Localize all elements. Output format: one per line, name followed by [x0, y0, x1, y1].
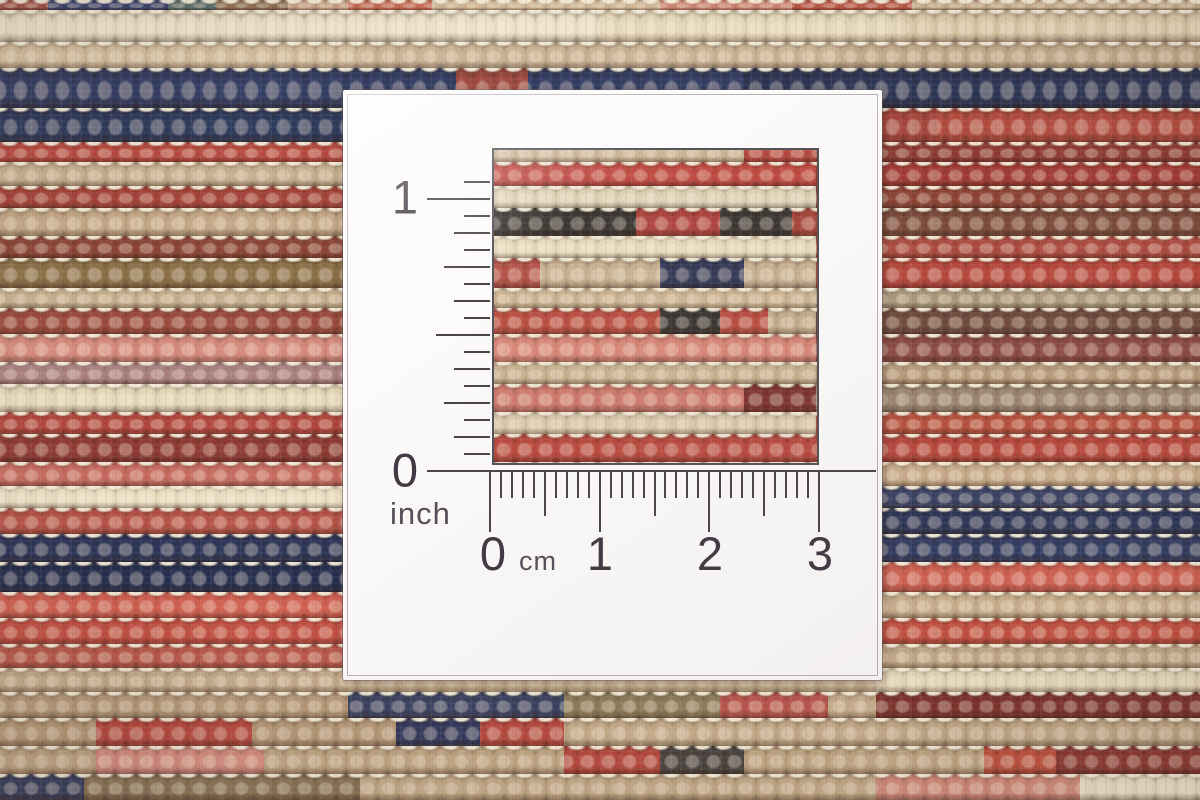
- carpet-through-window: [492, 148, 819, 465]
- carpet-row: [492, 434, 819, 462]
- ruler-tick: [796, 472, 798, 498]
- carpet-row: [0, 0, 1200, 10]
- ruler-tick: [577, 472, 579, 498]
- carpet-row: [0, 10, 1200, 42]
- ruler-tick: [752, 472, 754, 498]
- ruler-tick: [599, 472, 601, 532]
- ruler-tick: [464, 351, 490, 353]
- ruler-tick: [464, 317, 490, 319]
- ruler-tick: [454, 300, 490, 302]
- cm-unit-label: cm: [519, 548, 557, 575]
- ruler-tick: [807, 472, 809, 498]
- ruler-tick: [675, 472, 677, 498]
- ruler-tick: [454, 232, 490, 234]
- carpet-row: [492, 362, 819, 384]
- cm-label-0: 0: [480, 530, 506, 577]
- carpet-row: [492, 258, 819, 288]
- ruler-tick: [454, 368, 490, 370]
- ruler-tick: [436, 334, 490, 336]
- ruler-tick: [774, 472, 776, 498]
- cm-label-2: 2: [697, 530, 723, 577]
- carpet-row: [0, 692, 1200, 718]
- cm-label-3: 3: [807, 530, 833, 577]
- ruler-tick: [588, 472, 590, 498]
- ruler-tick: [522, 472, 524, 498]
- carpet-row: [492, 148, 819, 162]
- ruler-tick: [719, 472, 721, 498]
- carpet-row: [492, 462, 819, 465]
- ruler-tick: [632, 472, 634, 498]
- carpet-row: [0, 774, 1200, 800]
- ruler-tick: [621, 472, 623, 498]
- ruler-tick: [533, 472, 535, 498]
- carpet-row: [492, 236, 819, 258]
- ruler-tick: [544, 472, 546, 516]
- card-cutout-window: [492, 148, 819, 465]
- ruler-tick: [464, 419, 490, 421]
- carpet-row: [492, 384, 819, 412]
- ruler-tick: [566, 472, 568, 498]
- ruler-tick: [730, 472, 732, 498]
- ruler-tick: [444, 266, 490, 268]
- carpet-row: [492, 208, 819, 236]
- carpet-row: [0, 42, 1200, 68]
- ruler-tick: [818, 472, 820, 532]
- carpet-row: [492, 412, 819, 434]
- ruler-tick: [785, 472, 787, 498]
- ruler-tick: [427, 198, 490, 200]
- ruler-tick: [454, 436, 490, 438]
- carpet-row: [492, 334, 819, 362]
- ruler-tick: [686, 472, 688, 498]
- ruler-tick: [664, 472, 666, 498]
- inch-label-0: 0: [373, 447, 418, 494]
- cm-label-1: 1: [587, 530, 613, 577]
- ruler-tick: [708, 472, 710, 532]
- carpet-row: [492, 186, 819, 208]
- ruler-tick: [610, 472, 612, 498]
- ruler-tick: [427, 470, 876, 472]
- carpet-row: [0, 718, 1200, 746]
- ruler-tick: [489, 472, 491, 532]
- ruler-tick: [741, 472, 743, 498]
- measuring-card: 1 0 inch 0 cm 1 2 3: [343, 90, 882, 680]
- ruler-tick: [555, 472, 557, 498]
- ruler-tick: [464, 249, 490, 251]
- ruler-tick: [444, 402, 490, 404]
- ruler-tick: [464, 283, 490, 285]
- inch-unit-label: inch: [390, 498, 451, 529]
- ruler-tick: [464, 385, 490, 387]
- ruler-tick: [464, 181, 490, 183]
- carpet-row: [492, 288, 819, 308]
- ruler-tick: [654, 472, 656, 516]
- ruler-tick: [697, 472, 699, 498]
- ruler-tick: [643, 472, 645, 498]
- ruler-tick: [464, 215, 490, 217]
- ruler-tick: [464, 453, 490, 455]
- carpet-row: [492, 162, 819, 186]
- ruler-tick: [511, 472, 513, 498]
- carpet-row: [0, 746, 1200, 774]
- ruler-tick: [500, 472, 502, 498]
- carpet-row: [492, 308, 819, 334]
- rug-photo: 1 0 inch 0 cm 1 2 3: [0, 0, 1200, 800]
- ruler-tick: [763, 472, 765, 516]
- ruler-tick: [427, 470, 490, 472]
- inch-label-1: 1: [373, 174, 418, 221]
